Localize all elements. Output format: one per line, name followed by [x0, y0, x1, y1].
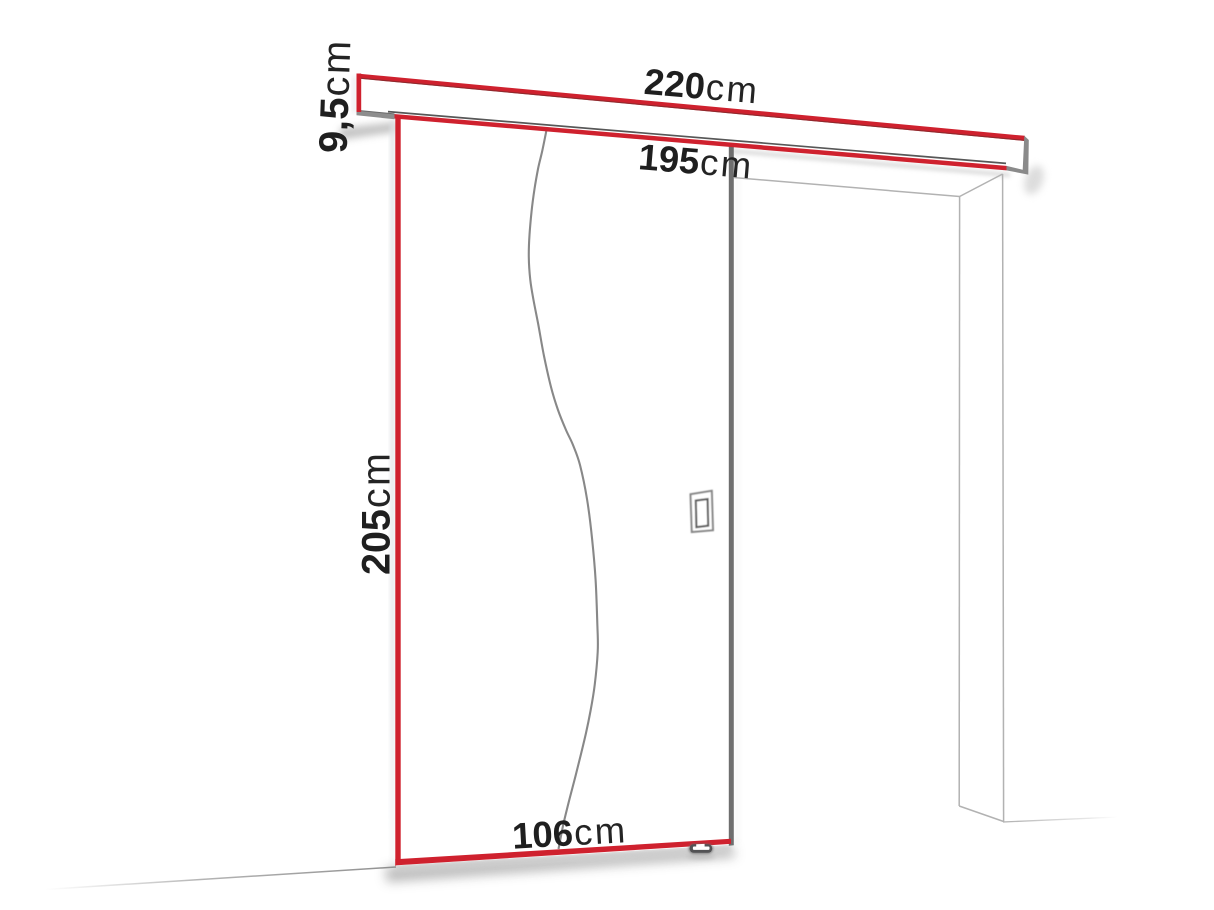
svg-text:106cm: 106cm [511, 809, 629, 857]
svg-text:205cm: 205cm [355, 451, 399, 575]
svg-text:9,5cm: 9,5cm [312, 38, 360, 154]
